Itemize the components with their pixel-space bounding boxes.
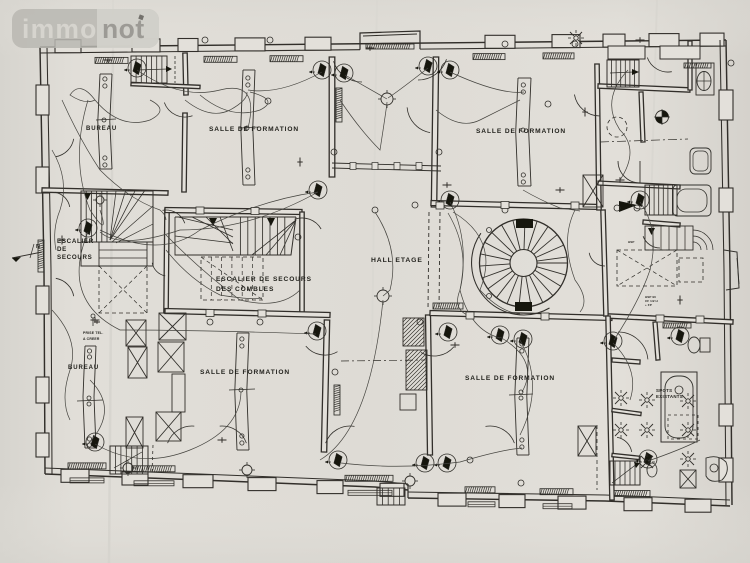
svg-text:A CREER: A CREER xyxy=(83,337,100,341)
svg-text:BUREAU: BUREAU xyxy=(86,126,117,132)
svg-text:BUREAU: BUREAU xyxy=(68,365,99,371)
svg-text:SALLE DE FORMATION: SALLE DE FORMATION xyxy=(200,369,290,376)
svg-text:SPOTS: SPOTS xyxy=(656,388,672,393)
svg-text:SECOURS: SECOURS xyxy=(57,254,93,261)
svg-text:ESCALIER: ESCALIER xyxy=(57,238,94,245)
svg-text:PRISE TEL.: PRISE TEL. xyxy=(83,331,103,335)
svg-text:EXISTANTS: EXISTANTS xyxy=(656,394,683,399)
svg-text:N: N xyxy=(36,244,40,250)
svg-text:+ FP: + FP xyxy=(645,303,652,307)
svg-text:DE: DE xyxy=(57,246,67,253)
svg-text:HSP: HSP xyxy=(628,240,634,244)
svg-text:SALLE DE FORMATION: SALLE DE FORMATION xyxy=(476,128,566,135)
svg-text:HALL ETAGE: HALL ETAGE xyxy=(371,257,423,264)
svg-text:ESCALIER DE SECOURS: ESCALIER DE SECOURS xyxy=(216,276,312,283)
svg-text:SALLE DE FORMATION: SALLE DE FORMATION xyxy=(465,375,555,382)
svg-text:SALLE DE FORMATION: SALLE DE FORMATION xyxy=(209,126,299,133)
svg-text:DES COMBLES: DES COMBLES xyxy=(216,286,274,293)
svg-text:immo: immo xyxy=(22,14,97,44)
svg-text:not: not xyxy=(102,14,145,44)
